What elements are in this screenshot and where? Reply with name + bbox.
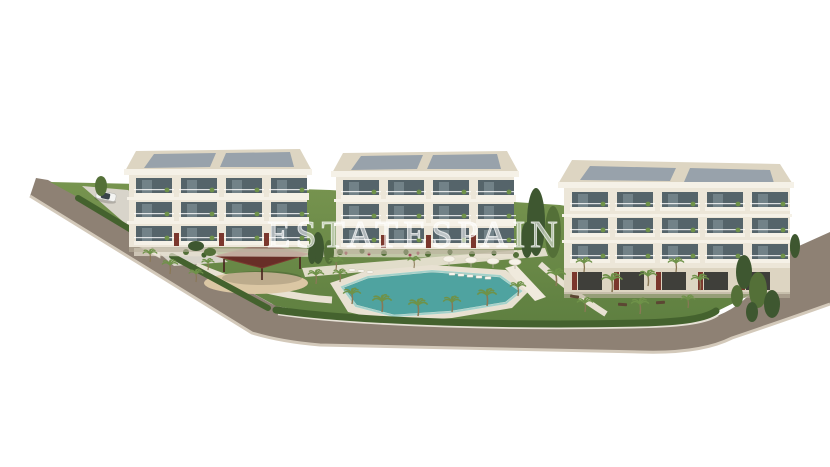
lounger [349, 269, 355, 271]
lounger [449, 273, 455, 275]
lounger [476, 276, 482, 278]
building-middle [331, 151, 519, 254]
building-left [124, 149, 312, 252]
lounger [458, 274, 464, 276]
lounger [367, 271, 373, 273]
lounger [467, 275, 473, 277]
scene-svg [0, 0, 830, 467]
lounger [358, 270, 364, 272]
render-canvas: ESTATESPAIN [0, 0, 830, 467]
lounger [485, 277, 491, 279]
